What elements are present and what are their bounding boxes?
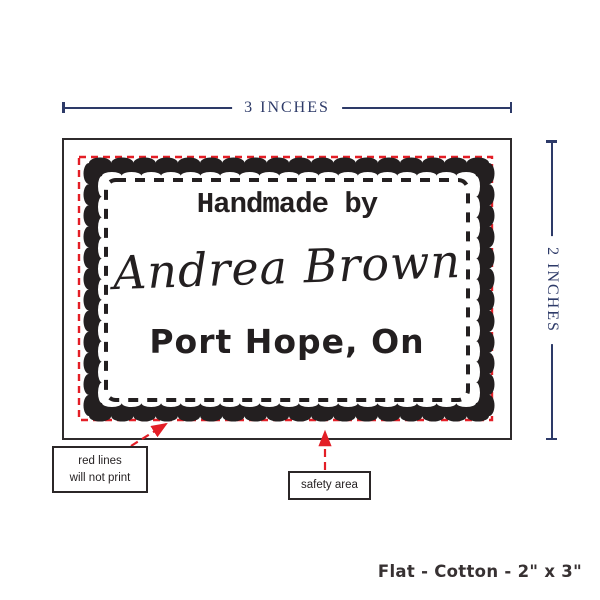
label-name: Andrea Brown — [63, 232, 511, 302]
dimension-end-cap — [62, 102, 65, 113]
width-dimension: 3 INCHES — [62, 99, 512, 117]
red-lines-callout-line1: red lines — [56, 453, 144, 470]
dimension-end-cap — [510, 102, 513, 113]
label-location: Port Hope, On — [64, 322, 510, 361]
dimension-end-cap — [546, 438, 557, 441]
width-dimension-label: 3 INCHES — [232, 92, 342, 124]
red-lines-callout: red lines will not print — [52, 446, 148, 493]
red-lines-callout-line2: will not print — [56, 470, 144, 487]
label-proof-canvas: 3 INCHES 2 INCHES Handmade by Andrea Bro… — [0, 0, 600, 600]
product-spec: Flat - Cotton - 2" x 3" — [378, 562, 582, 581]
label-heading: Handmade by — [64, 188, 510, 221]
label-text-block: Handmade by Andrea Brown Port Hope, On — [64, 140, 510, 438]
dimension-end-cap — [546, 140, 557, 143]
safety-area-callout: safety area — [288, 471, 371, 500]
height-dimension-label: 2 INCHES — [537, 236, 567, 344]
label-preview: Handmade by Andrea Brown Port Hope, On — [62, 138, 512, 440]
height-dimension: 2 INCHES — [543, 140, 561, 440]
